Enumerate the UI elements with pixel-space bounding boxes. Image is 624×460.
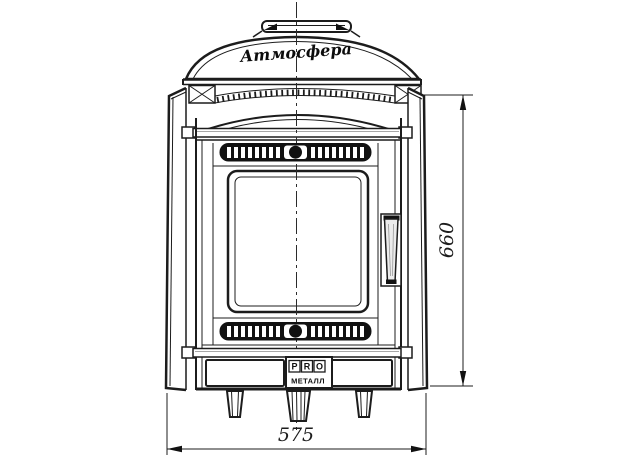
arrowhead-bottom-icon (460, 371, 466, 386)
leg-right (356, 391, 372, 417)
maker-badge: P R O МЕТАЛЛ (286, 357, 332, 388)
arrowhead-right-icon (411, 446, 426, 452)
chimney-collar (253, 21, 360, 37)
badge-letter-2: R (304, 362, 311, 372)
badge-letter-3: O (316, 362, 323, 372)
door-handle (381, 214, 401, 286)
arrowhead-left-icon (167, 446, 182, 452)
badge-word: МЕТАЛЛ (291, 377, 325, 386)
height-dimension-label: 660 (436, 222, 458, 258)
corner-brace-left (189, 86, 215, 104)
width-dimension-label: 575 (278, 424, 314, 446)
leg-center (287, 391, 310, 421)
dimension-height: 660 (424, 95, 473, 386)
cornice-band (183, 79, 421, 103)
leg-left (227, 391, 243, 417)
door-glass (228, 171, 368, 312)
badge-letter-1: P (291, 362, 297, 372)
stove-technical-drawing: Атмосфера (0, 0, 624, 460)
legs (227, 391, 372, 421)
arrowhead-top-icon (460, 95, 466, 110)
base-panel: P R O МЕТАЛЛ (196, 357, 401, 389)
air-vent-top (220, 143, 372, 162)
air-vent-bottom (220, 322, 372, 341)
